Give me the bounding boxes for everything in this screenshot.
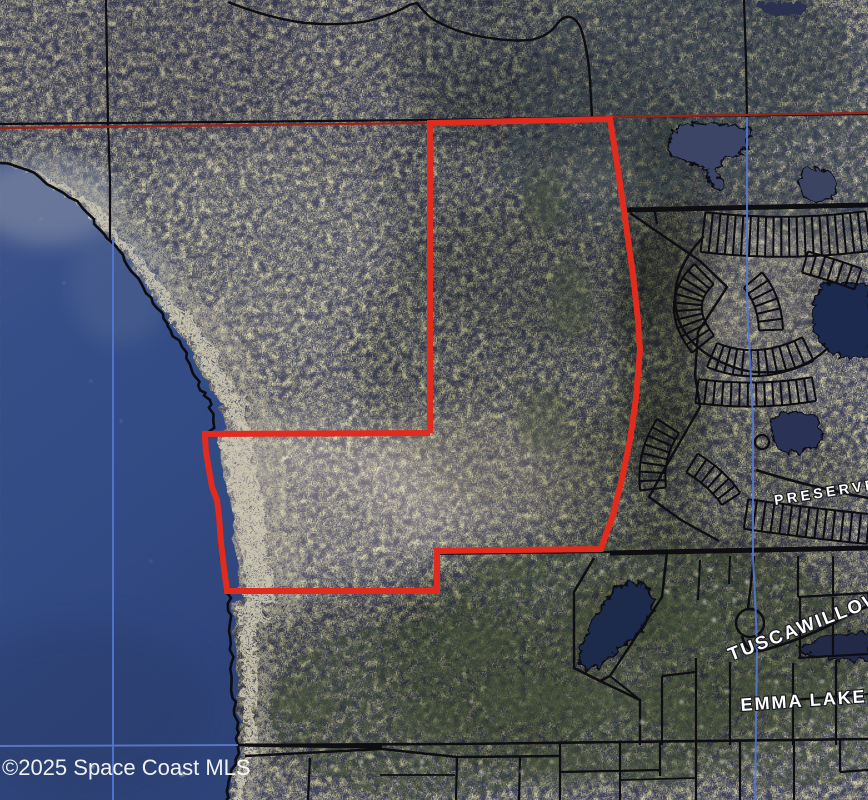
svg-text:©2025 Space Coast MLS: ©2025 Space Coast MLS (2, 755, 251, 780)
